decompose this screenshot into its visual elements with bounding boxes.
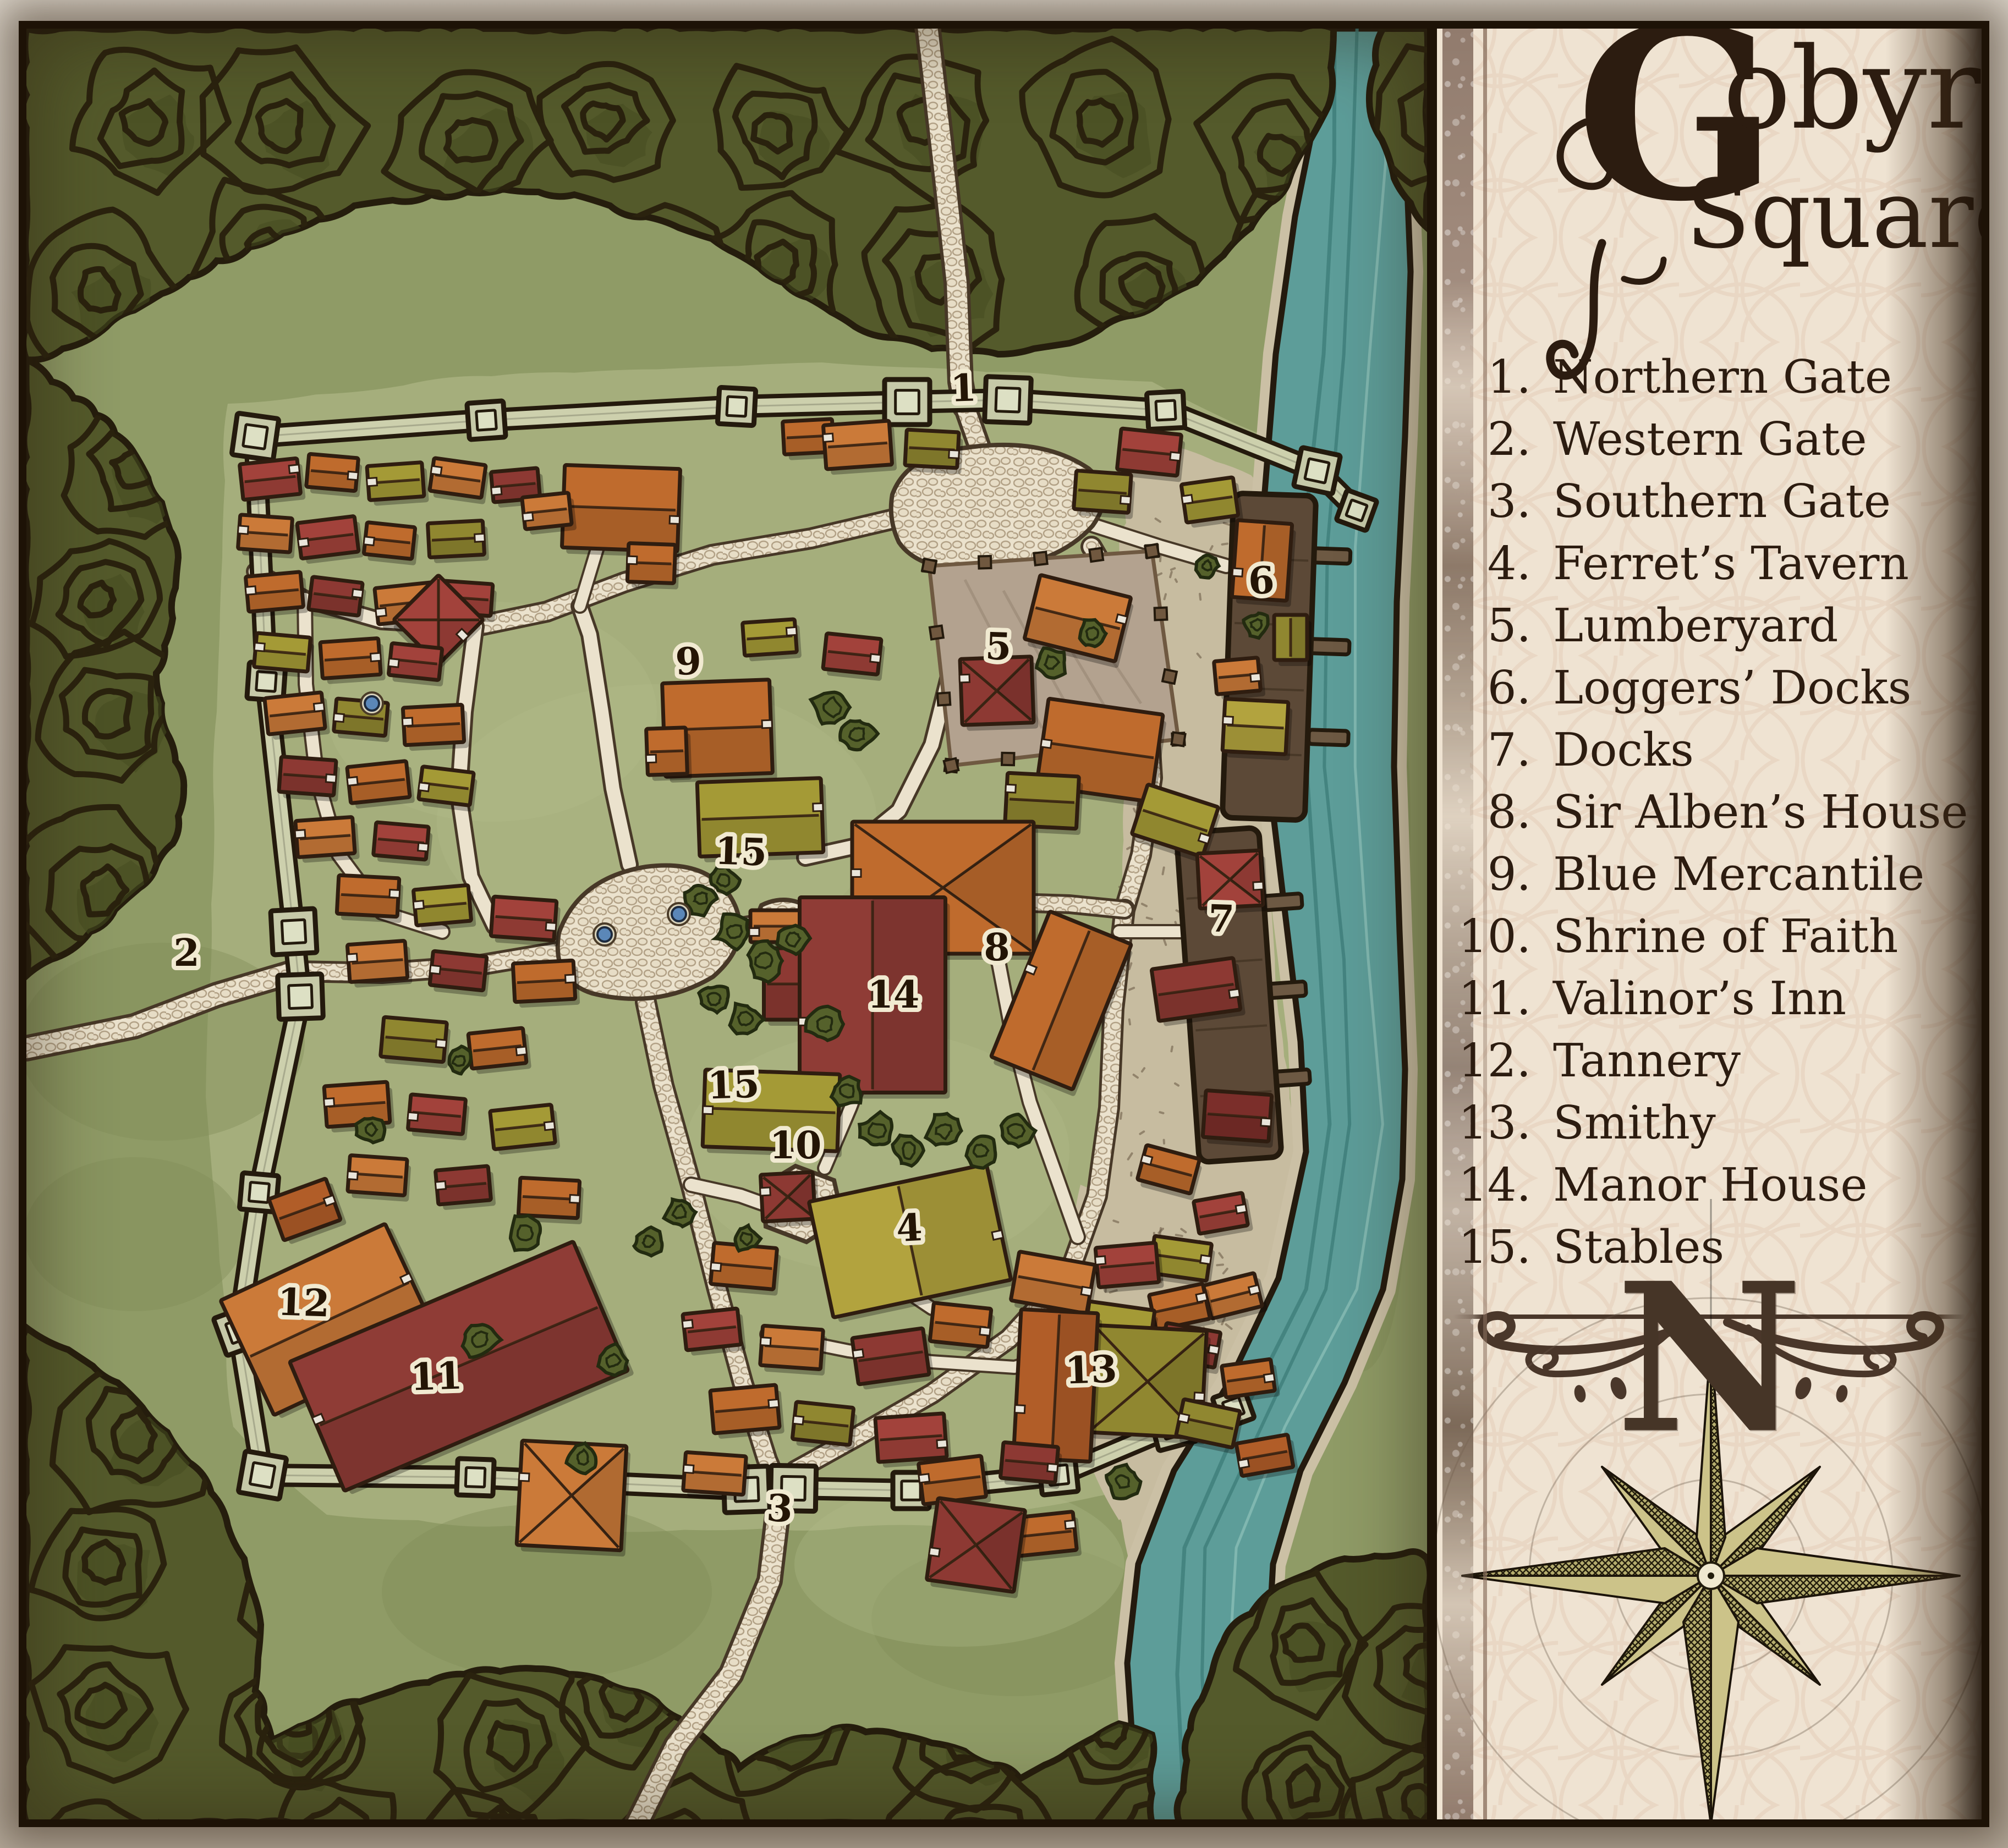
compass-north-letter: N [1437,1256,1982,1461]
building [373,822,434,866]
building [1202,1090,1276,1148]
legend-label: Loggers’ Docks [1535,661,1911,714]
title-rest: obyr [1723,33,1980,146]
well [672,907,686,921]
legend-item-8: 8.Sir Alben’s House [1437,783,1982,845]
building [308,577,367,623]
building [239,458,305,505]
building [387,643,447,686]
wall-tower [1293,447,1340,494]
building [346,941,412,988]
compass-core [1698,1563,1724,1589]
building [645,727,692,781]
map-marker-12: 12 [277,1280,330,1325]
tree [511,1215,540,1251]
legend-item-1: 1.Northern Gate [1437,348,1982,410]
map-marker-7: 7 [1208,897,1235,942]
building [380,1017,452,1068]
legend-item-12: 12.Tannery [1437,1031,1982,1093]
legend-label: Smithy [1535,1096,1716,1149]
legend-label: Blue Mercantile [1535,848,1924,901]
building [822,420,897,475]
wall-tower [271,909,317,955]
map-marker-6: 6 [1247,558,1275,603]
title-line2: Square [1686,167,1982,262]
wall-tower [238,1451,287,1499]
building [521,492,577,536]
town-map: 12345678910111213141515 [26,29,1427,1819]
map-marker-14: 14 [868,973,920,1017]
legend-item-7: 7.Docks [1437,721,1982,783]
legend-item-6: 6.Loggers’ Docks [1437,658,1982,721]
building [296,515,364,564]
legend-label: Tannery [1535,1034,1741,1087]
well [365,696,379,711]
legend-panel: G obyr Square 1.Northern Gate2.Western G… [1437,29,1982,1819]
legend-list: 1.Northern Gate2.Western Gate3.Southern … [1437,348,1982,1280]
legend-item-2: 2.Western Gate [1437,410,1982,472]
compass-point [1602,1467,1711,1576]
compass-point [1711,1467,1820,1576]
building [1221,1358,1280,1404]
wall-tower [1336,490,1377,531]
map-marker-1: 1 [950,366,977,411]
legend-item-14: 14.Manor House [1437,1156,1982,1218]
map-marker-3: 3 [765,1486,793,1531]
building [929,1303,996,1354]
building [337,875,404,923]
tree [356,1118,385,1143]
legend-item-9: 9.Blue Mercantile [1437,845,1982,907]
legend-item-3: 3.Southern Gate [1437,472,1982,534]
legend-number: 10. [1437,907,1535,966]
building [490,897,561,947]
legend-number: 13. [1437,1093,1535,1153]
building [366,462,429,506]
legend-number: 14. [1437,1156,1535,1215]
building [402,705,469,751]
map-marker-5: 5 [985,624,1012,669]
building [822,633,886,681]
map-marker-15: 15 [707,1062,760,1108]
legend-label: Docks [1535,723,1694,777]
building [710,1384,784,1439]
building [743,619,802,662]
framed-sheet: 12345678910111213141515 G obyr Square 1.… [19,21,1989,1827]
legend-label: Manor House [1535,1158,1867,1212]
legend-label: Southern Gate [1535,475,1891,528]
building [1274,615,1312,666]
building [244,571,308,618]
building [1094,1242,1164,1294]
legend-number: 11. [1437,969,1535,1028]
building [904,430,963,474]
legend-number: 6. [1437,658,1535,718]
building [346,1155,412,1202]
legend-item-4: 4.Ferret’s Tavern [1437,534,1982,596]
building [416,766,478,812]
legend-number: 9. [1437,845,1535,904]
compass-point [1602,1576,1711,1685]
building [468,1027,531,1075]
legend-label: Lumberyard [1535,599,1838,652]
map-marker-15: 15 [714,829,767,875]
compass-point [1711,1548,1960,1603]
building [320,638,386,685]
legend-item-11: 11.Valinor’s Inn [1437,969,1982,1031]
building [1073,471,1135,519]
building [306,454,363,497]
compass-point [1683,1576,1738,1819]
wall-tower [278,974,323,1020]
building [1151,957,1246,1027]
wall-tower [1146,391,1184,429]
map-marker-2: 2 [173,931,199,975]
legend-number: 2. [1437,410,1535,469]
map-marker-13: 13 [1065,1347,1118,1393]
building [851,1328,935,1391]
legend-label: Shrine of Faith [1535,910,1898,963]
wall-tower [885,380,930,425]
building [427,520,489,564]
building [362,522,420,565]
building [759,1325,827,1376]
building [265,692,330,740]
legend-number: 3. [1437,472,1535,531]
compass-point [1711,1576,1820,1685]
map-marker-4: 4 [895,1206,923,1251]
legend-label: Valinor’s Inn [1535,972,1846,1025]
legend-label: Sir Alben’s House [1535,785,1968,839]
building [682,1308,746,1356]
building [490,1104,561,1156]
building [434,1165,496,1211]
wall-tower [717,387,755,425]
legend-number: 4. [1437,534,1535,593]
well [597,927,612,942]
building [1000,1442,1062,1489]
map-panel-divider [1427,29,1437,1819]
legend-label: Northern Gate [1535,350,1892,404]
legend-label: Western Gate [1535,413,1867,466]
building [346,761,415,810]
legend-number: 5. [1437,596,1535,656]
legend-item-13: 13.Smithy [1437,1093,1982,1156]
building [412,885,476,932]
building [791,1401,858,1451]
building [278,757,341,802]
legend-number: 1. [1437,348,1535,407]
map-marker-9: 9 [674,639,702,684]
building [406,1094,470,1141]
map-marker-11: 11 [410,1354,463,1399]
legend-number: 7. [1437,721,1535,780]
building [682,1452,750,1501]
map-marker-8: 8 [984,926,1010,970]
legend-number: 12. [1437,1031,1535,1091]
wall-tower [457,1459,494,1496]
building [513,960,580,1008]
wall-tower [985,377,1032,424]
building [626,543,680,589]
building [428,951,491,997]
compass-point [1462,1548,1711,1603]
wall-tower [232,413,279,460]
map-marker-10: 10 [770,1124,822,1168]
wall-tower [467,401,506,439]
building [1221,698,1293,760]
legend-number: 8. [1437,783,1535,842]
building [1214,657,1266,700]
building [427,458,490,504]
legend-label: Ferret’s Tavern [1535,537,1909,590]
legend-item-5: 5.Lumberyard [1437,596,1982,658]
building [253,633,315,678]
building [925,1498,1030,1598]
town-map-area: 12345678910111213141515 [26,29,1427,1819]
building [237,515,297,559]
building [294,817,360,864]
building [1180,477,1243,529]
legend-item-10: 10.Shrine of Faith [1437,907,1982,969]
